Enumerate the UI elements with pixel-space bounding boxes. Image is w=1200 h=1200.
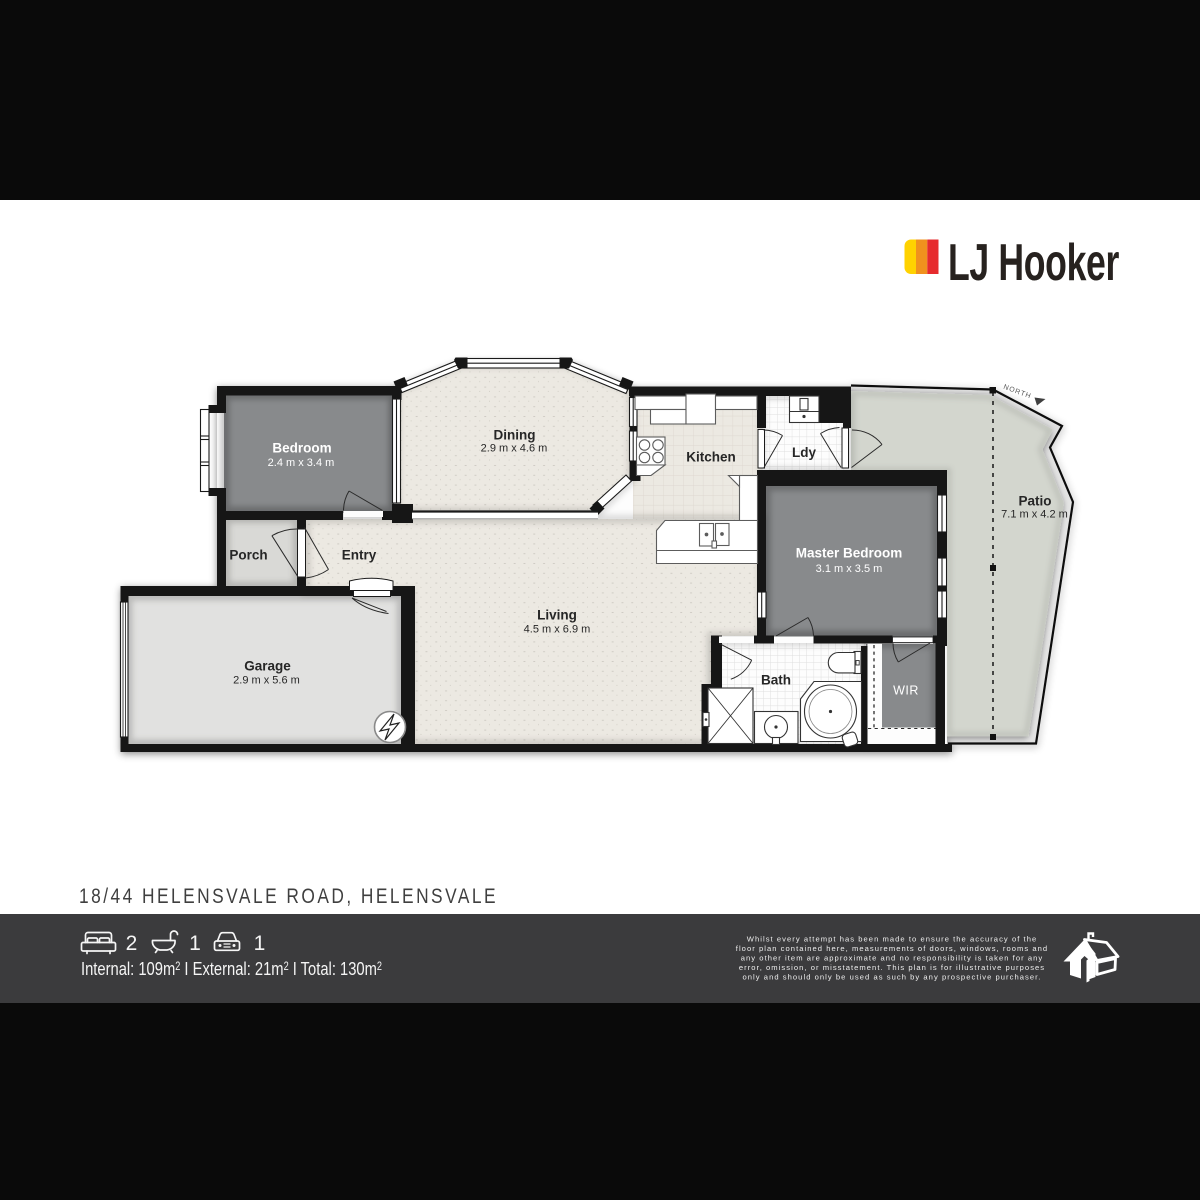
svg-text:Porch: Porch [229, 548, 267, 563]
svg-text:18/44 HELENSVALE ROAD, HELENSV: 18/44 HELENSVALE ROAD, HELENSVALE [79, 885, 498, 908]
svg-text:2.9 m x 5.6 m: 2.9 m x 5.6 m [233, 675, 300, 687]
svg-text:floor plan contained here, mea: floor plan contained here, measurements … [736, 944, 1048, 953]
svg-text:1: 1 [189, 932, 201, 955]
svg-text:any other item are approximate: any other item are approximate and no re… [741, 954, 1044, 963]
svg-text:only and should only be used a: only and should only be used as such by … [743, 973, 1042, 982]
svg-text:Kitchen: Kitchen [686, 450, 736, 465]
svg-text:4.5 m x 6.9 m: 4.5 m x 6.9 m [524, 624, 591, 636]
svg-text:2.4 m x 3.4 m: 2.4 m x 3.4 m [268, 457, 335, 469]
svg-text:Ldy: Ldy [792, 445, 816, 460]
svg-text:Patio: Patio [1018, 494, 1051, 509]
svg-text:1: 1 [254, 932, 266, 955]
svg-text:Garage: Garage [244, 659, 291, 674]
svg-text:Entry: Entry [342, 548, 377, 563]
svg-text:3.1 m x 3.5 m: 3.1 m x 3.5 m [816, 563, 883, 575]
svg-text:2: 2 [126, 932, 138, 955]
svg-text:Living: Living [537, 608, 577, 623]
svg-text:Bath: Bath [761, 673, 791, 688]
svg-text:Internal: 109m2 I External: 21: Internal: 109m2 I External: 21m2 I Total… [81, 958, 382, 979]
svg-text:Master Bedroom: Master Bedroom [796, 546, 903, 561]
svg-text:LJ Hooker: LJ Hooker [948, 234, 1119, 292]
svg-text:Whilst every attempt has been: Whilst every attempt has been made to en… [747, 935, 1038, 944]
svg-text:Dining: Dining [494, 428, 536, 443]
svg-text:error, omission, or misstateme: error, omission, or misstatement. This p… [739, 963, 1045, 972]
svg-text:2.9 m x 4.6 m: 2.9 m x 4.6 m [481, 443, 548, 455]
svg-text:Bedroom: Bedroom [272, 441, 331, 456]
svg-text:WIR: WIR [893, 684, 919, 698]
svg-text:7.1 m x 4.2 m: 7.1 m x 4.2 m [1001, 509, 1068, 521]
